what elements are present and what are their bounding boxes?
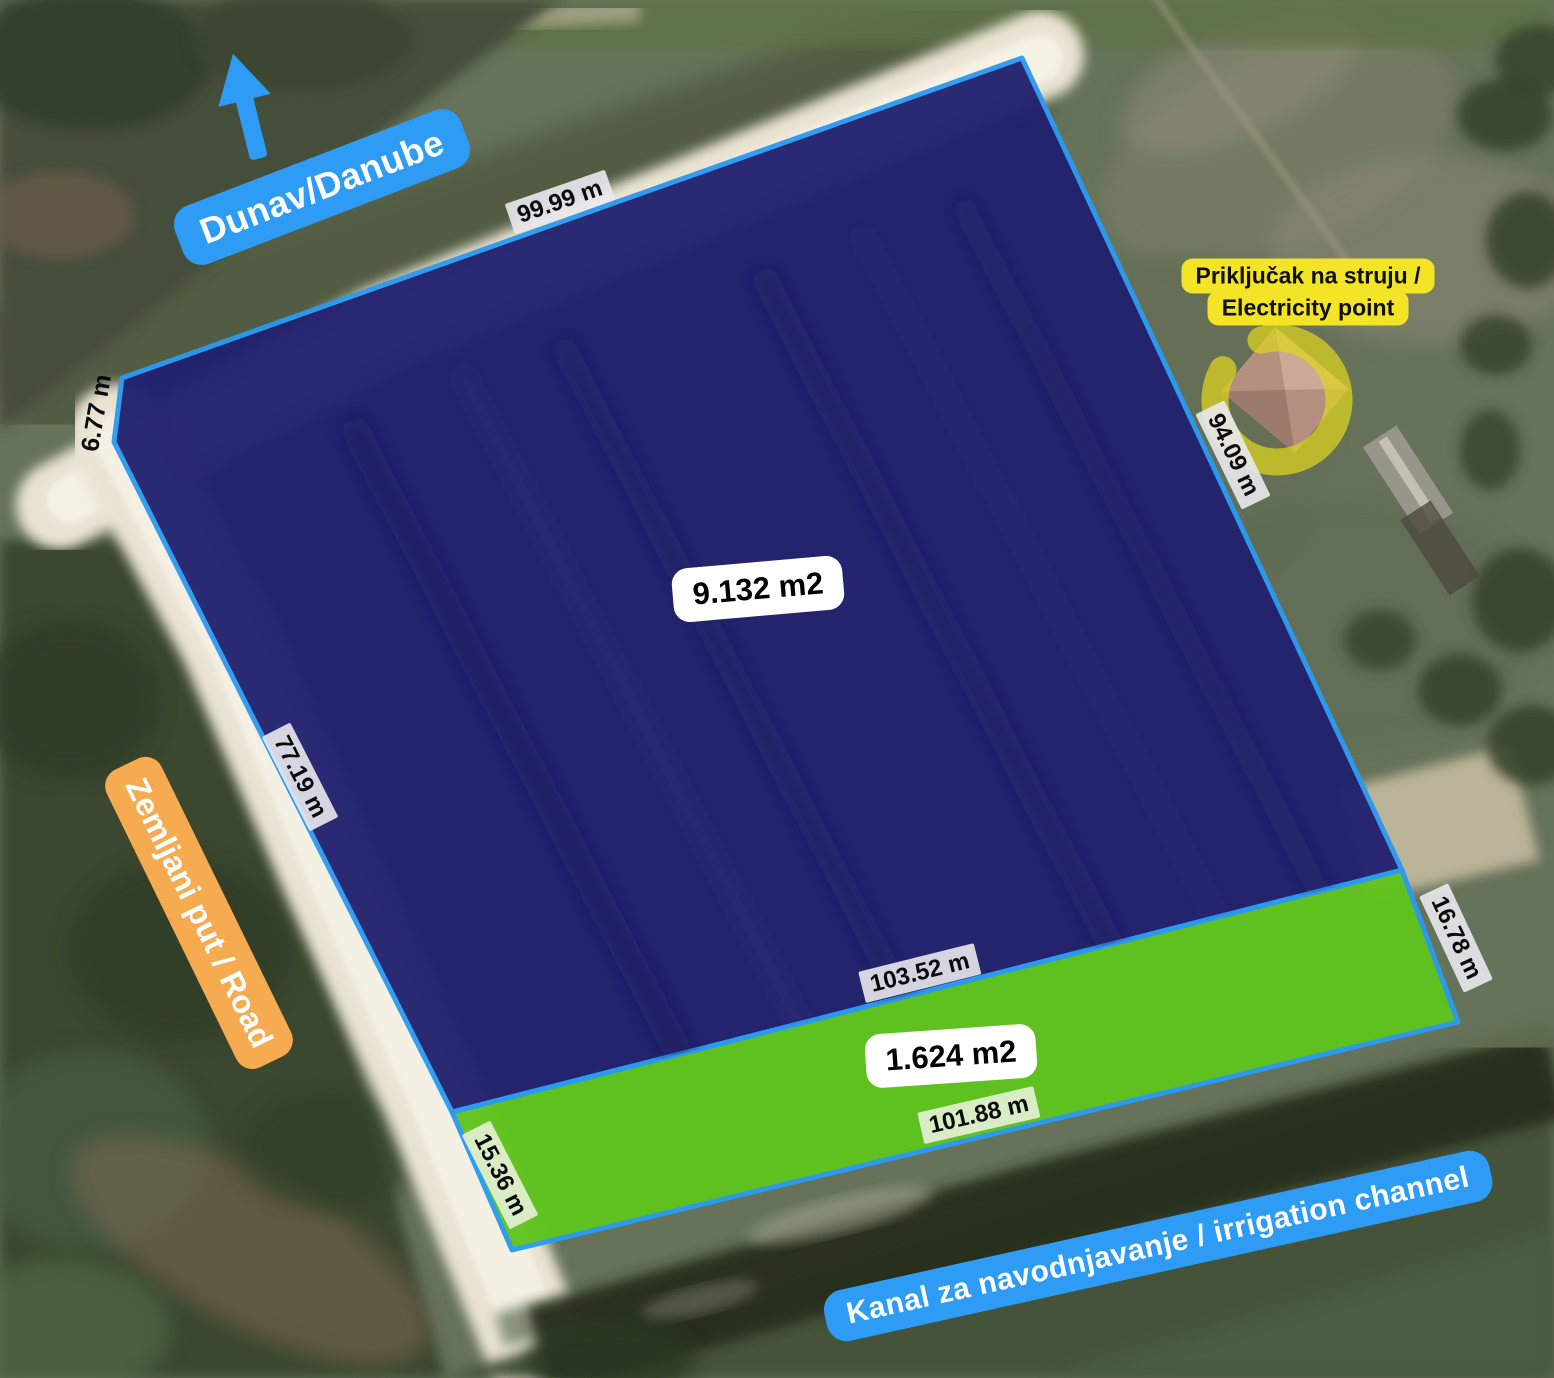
electricity-label: Priključak na struju / Electricity point <box>1182 259 1435 326</box>
electricity-label-line2: Electricity point <box>1208 291 1409 326</box>
electricity-label-line1: Priključak na struju / <box>1182 259 1435 294</box>
satellite-parcel-map: Dunav/Danube Zemljani put / Road Kanal z… <box>0 0 1554 1378</box>
